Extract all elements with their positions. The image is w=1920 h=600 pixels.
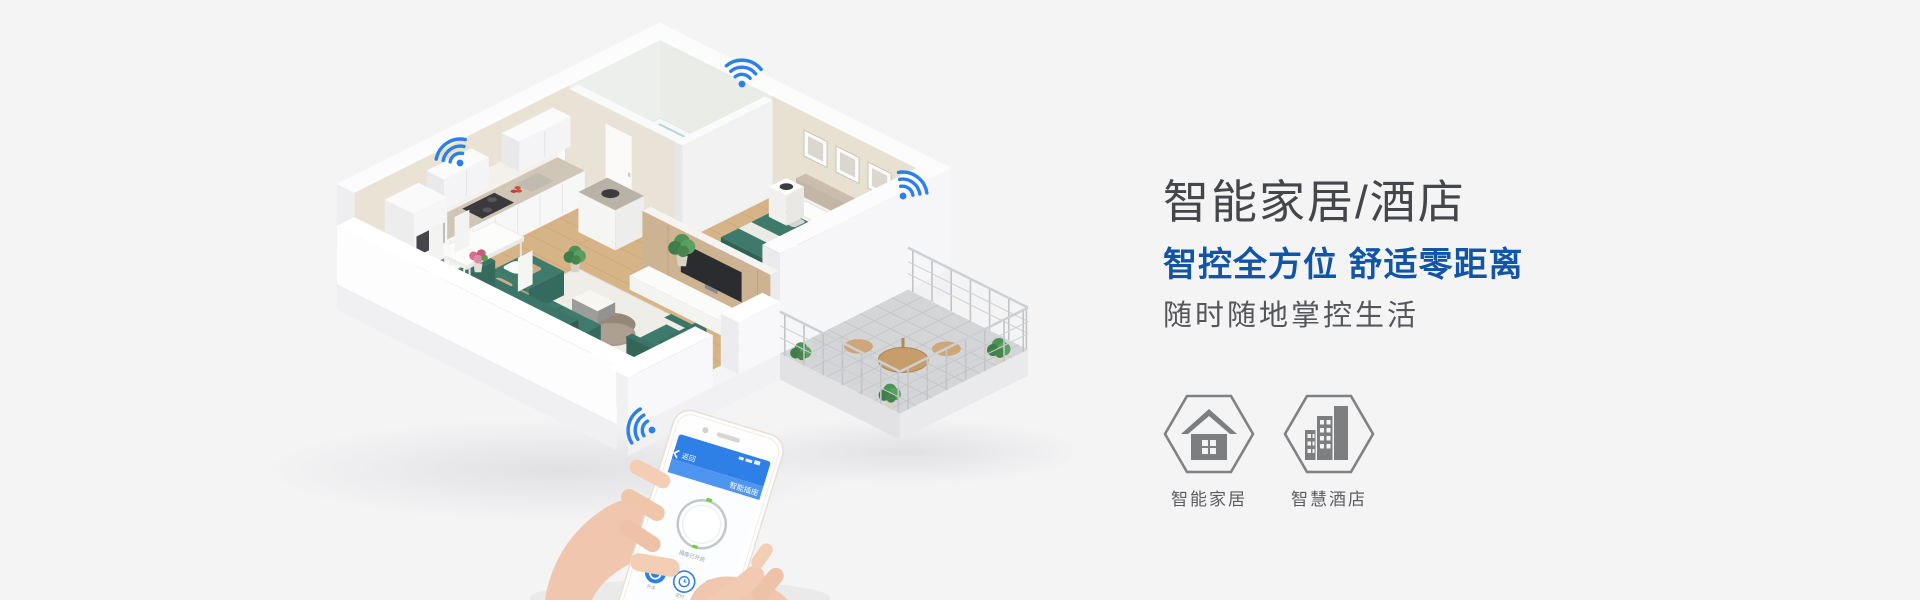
hero-subtitle: 智控全方位 舒适零距离	[1163, 247, 1723, 284]
category-smart-hotel[interactable]: 智慧酒店	[1281, 392, 1377, 510]
home-icon	[1161, 392, 1257, 476]
category-smart-home[interactable]: 智能家居	[1161, 392, 1257, 510]
category-list: 智能家居 智慧酒店	[1161, 392, 1377, 510]
hero-tagline: 随时随地掌控生活	[1163, 301, 1723, 333]
hero-banner: 返回 智能插座 插座已开启 开关 定时	[0, 0, 1920, 600]
category-label: 智能家居	[1171, 485, 1247, 510]
page-title: 智能家居/酒店	[1163, 177, 1723, 228]
hero-copy: 智能家居/酒店 智控全方位 舒适零距离 随时随地掌控生活	[1163, 177, 1723, 333]
hotel-icon	[1281, 392, 1377, 476]
category-label: 智慧酒店	[1291, 485, 1367, 510]
